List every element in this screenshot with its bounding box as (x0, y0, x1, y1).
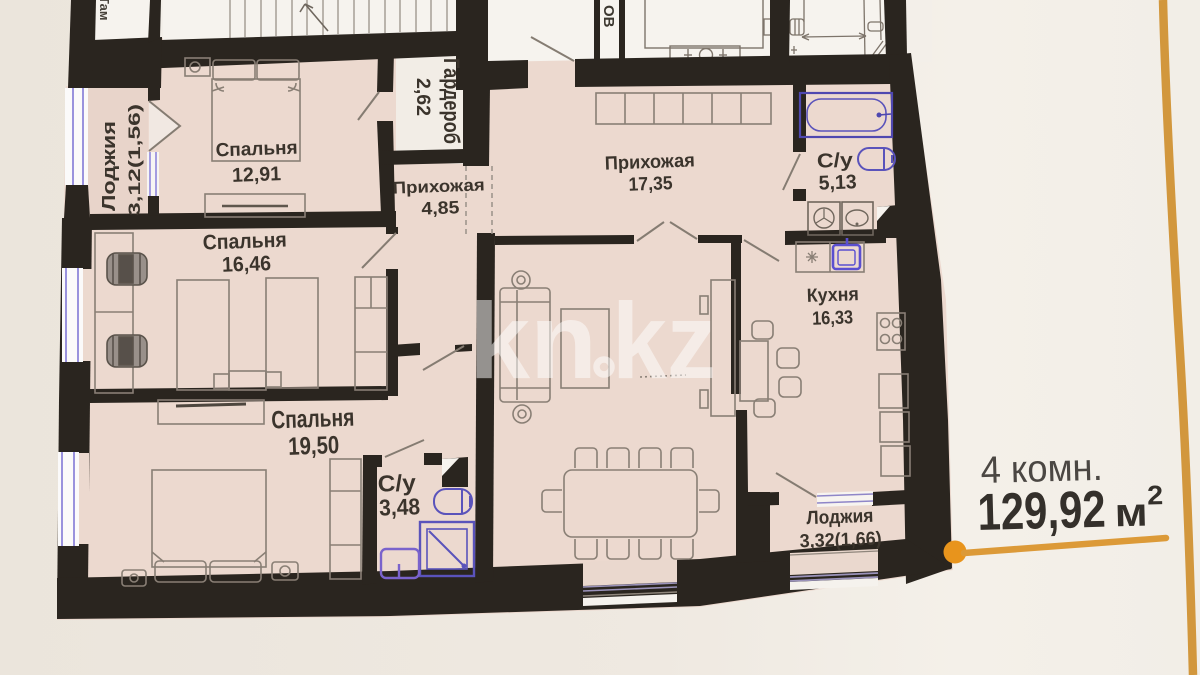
svg-text:Там: Там (97, 0, 112, 20)
svg-text:Лоджия: Лоджия (99, 121, 119, 211)
svg-text:3,32(1,66): 3,32(1,66) (799, 529, 882, 553)
svg-text:3,48: 3,48 (379, 493, 421, 520)
svg-text:Лоджия: Лоджия (806, 506, 874, 529)
svg-text:Прихожая: Прихожая (604, 150, 695, 174)
svg-text:ОВ: ОВ (600, 5, 617, 28)
svg-text:Спальня: Спальня (215, 138, 298, 162)
svg-text:5,13: 5,13 (818, 171, 857, 194)
svg-text:2,62: 2,62 (412, 78, 433, 116)
svg-text:kz: kz (612, 280, 716, 401)
svg-text:Прихожая: Прихожая (392, 175, 485, 197)
svg-text:3,12(1,56): 3,12(1,56) (125, 104, 144, 216)
svg-text:19,50: 19,50 (288, 431, 340, 461)
svg-text:Кухня: Кухня (806, 284, 859, 307)
svg-text:16,33: 16,33 (812, 307, 854, 329)
svg-text:С/у: С/у (817, 149, 855, 172)
svg-text:Гардероб: Гардероб (439, 58, 464, 144)
svg-text:16,46: 16,46 (222, 252, 272, 277)
svg-text:Спальня: Спальня (202, 229, 287, 255)
svg-text:17,35: 17,35 (628, 173, 673, 196)
svg-text:Спальня: Спальня (271, 404, 355, 435)
svg-text:kn: kn (469, 280, 597, 401)
svg-text:12,91: 12,91 (232, 163, 282, 187)
svg-text:4,85: 4,85 (421, 197, 460, 218)
